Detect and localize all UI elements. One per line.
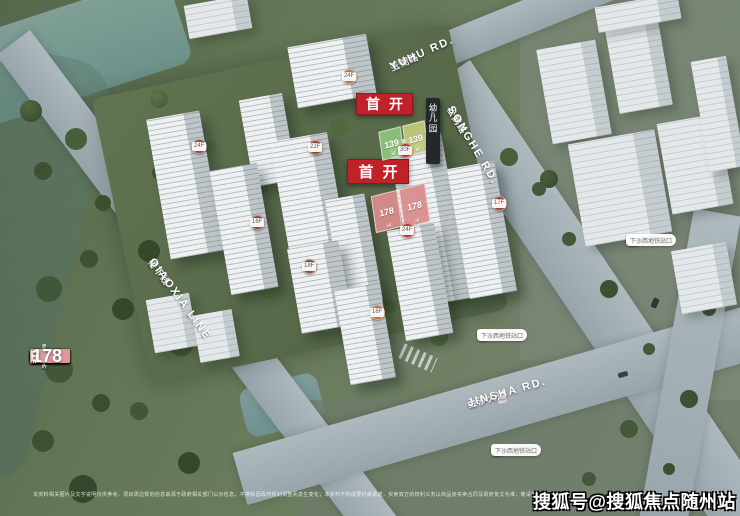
plate-unit: ㎡ <box>415 146 420 153</box>
building-floors: 22F <box>308 143 322 152</box>
building-floors: 18F <box>302 262 316 271</box>
building-floors: 16F <box>250 218 264 227</box>
metro-entrance-text: 下沙西地铁站口 <box>626 234 676 246</box>
building-floors: 17F <box>492 199 506 208</box>
building-floors: 24F <box>342 72 356 81</box>
crosswalk <box>398 343 437 372</box>
unit-plate-178: 178㎡ <box>399 183 431 228</box>
kindergarten-sub: (规划) <box>430 105 436 117</box>
first-launch-banner: 首开 <box>347 159 409 184</box>
offsite-slab <box>184 0 253 39</box>
plate-area: 178 <box>407 199 423 213</box>
building-floors: 24F <box>400 226 414 235</box>
plate-unit: ㎡ <box>415 217 420 224</box>
plate-unit: ㎡ <box>391 150 396 157</box>
metro-entrance-text: 下沙西地铁站口 <box>491 444 541 456</box>
city-block <box>671 242 737 315</box>
city-block <box>568 129 673 247</box>
aerial-site-plan: 玉湖路 (建设中) YUHU RD. 松鹤路 SONGHE RD. 金沙大道 J… <box>0 0 740 516</box>
unit-plate-178: 178㎡ <box>371 190 402 233</box>
watermark: 搜狐号@搜狐焦点随州站 <box>533 488 736 514</box>
kindergarten-sign: 幼儿园 (规划) <box>426 98 440 164</box>
trees-park <box>20 100 42 122</box>
legend-unit: ㎡ <box>30 355 37 365</box>
building-floors: 30F <box>398 146 412 155</box>
building-floors: 16F <box>370 308 384 317</box>
trees-courtyard <box>150 90 168 108</box>
first-launch-banner: 首开 <box>356 93 413 115</box>
plate-unit: ㎡ <box>387 222 392 229</box>
metro-entrance-text: 下沙西地铁站口 <box>477 329 527 341</box>
building-floors: 24F <box>192 142 206 151</box>
plate-area: 139 <box>408 132 424 146</box>
plate-area: 178 <box>379 205 395 219</box>
trees-roadside <box>540 170 558 188</box>
